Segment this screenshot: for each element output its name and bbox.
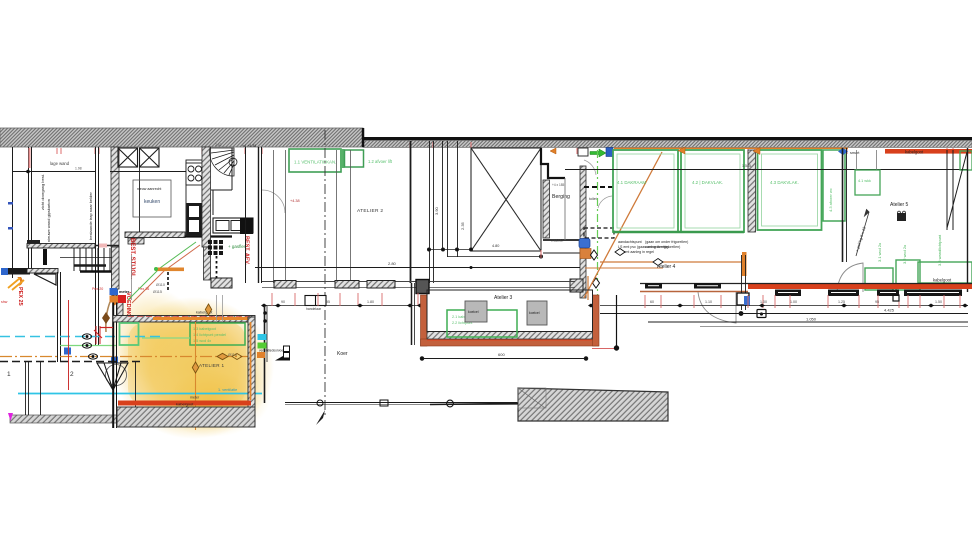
svg-text:koelcel: koelcel bbox=[529, 311, 540, 315]
svg-text:kabelgoot: kabelgoot bbox=[905, 150, 924, 155]
svg-text:+4 +4.38: +4 +4.38 bbox=[242, 144, 256, 148]
svg-text:2: 2 bbox=[70, 371, 74, 378]
svg-text:kabelgoot: kabelgoot bbox=[933, 278, 952, 283]
svg-text:1.050: 1.050 bbox=[806, 317, 817, 322]
svg-text:2.62: 2.62 bbox=[215, 143, 222, 147]
svg-text:meter: meter bbox=[119, 290, 130, 294]
svg-text:ventilatiedoorvoer: ventilatiedoorvoer bbox=[259, 349, 285, 353]
svg-text:koelcel: koelcel bbox=[468, 310, 479, 314]
svg-text:2.35: 2.35 bbox=[460, 221, 465, 230]
svg-text:Pex 20: Pex 20 bbox=[92, 287, 103, 291]
svg-text:90: 90 bbox=[281, 300, 285, 304]
svg-text:PEX 25: PEX 25 bbox=[17, 287, 23, 306]
svg-text:shw: shw bbox=[1, 300, 8, 304]
svg-text:(gaan om onder frigorellen): (gaan om onder frigorellen) bbox=[645, 240, 688, 244]
svg-text:1.50: 1.50 bbox=[935, 300, 942, 304]
svg-text:aandachtspunt: aandachtspunt bbox=[618, 240, 642, 244]
svg-text:nieuwe wand gipskarton: nieuwe wand gipskarton bbox=[46, 199, 51, 242]
svg-text:2.80: 2.80 bbox=[388, 261, 397, 266]
svg-text:1.545: 1.545 bbox=[742, 164, 751, 168]
svg-text:Atelier 3: Atelier 3 bbox=[494, 295, 513, 301]
svg-text:4.1 wkk: 4.1 wkk bbox=[858, 179, 871, 183]
svg-text:3.90: 3.90 bbox=[434, 206, 439, 215]
svg-text:4.1 DAKRAAM: 4.1 DAKRAAM bbox=[617, 180, 646, 185]
svg-text:1.1 VENTILATIEKAN.: 1.1 VENTILATIEKAN. bbox=[294, 160, 336, 165]
svg-text:+4.38: +4.38 bbox=[290, 199, 300, 203]
svg-text:3.3 wandlichtpunt: 3.3 wandlichtpunt bbox=[937, 234, 942, 266]
svg-text:BEST. AFV.: BEST. AFV. bbox=[244, 236, 250, 265]
svg-text:bestaande trap naar kelder: bestaande trap naar kelder bbox=[88, 192, 93, 240]
svg-text:1.00: 1.00 bbox=[790, 300, 797, 304]
svg-text:Ø115: Ø115 bbox=[153, 290, 162, 294]
svg-text:1: 1 bbox=[7, 371, 11, 378]
svg-text:1.4 lichtpunt pendel: 1.4 lichtpunt pendel bbox=[193, 333, 226, 337]
svg-text:Ø110: Ø110 bbox=[156, 283, 165, 287]
svg-text:4.425: 4.425 bbox=[884, 308, 895, 313]
svg-text:+4 x 185: +4 x 185 bbox=[552, 183, 565, 187]
svg-text:3.2 wcd 2x: 3.2 wcd 2x bbox=[902, 245, 907, 264]
svg-text:4.3 afvoer wc: 4.3 afvoer wc bbox=[828, 188, 833, 212]
svg-text:nieuw aanrecht: nieuw aanrecht bbox=[137, 187, 161, 191]
svg-text:3.1 wcd 2x: 3.1 wcd 2x bbox=[877, 243, 882, 262]
svg-text:wasbak: wasbak bbox=[551, 239, 563, 243]
svg-text:Koer: Koer bbox=[337, 351, 348, 357]
svg-text:handelaar: handelaar bbox=[306, 307, 322, 311]
svg-text:1.10: 1.10 bbox=[705, 300, 712, 304]
svg-text:1.00: 1.00 bbox=[760, 300, 767, 304]
svg-text:4.2 | DAKVLAK.: 4.2 | DAKVLAK. bbox=[692, 180, 723, 185]
svg-text:95: 95 bbox=[326, 300, 330, 304]
svg-text:1.3 kabelgoot: 1.3 kabelgoot bbox=[193, 327, 217, 331]
svg-text:smart: smart bbox=[850, 151, 860, 155]
svg-text:1. ventilatie: 1. ventilatie bbox=[218, 388, 237, 392]
svg-text:BEST. STIJGL.: BEST. STIJGL. bbox=[129, 238, 135, 280]
svg-text:ATELIER 2: ATELIER 2 bbox=[357, 208, 383, 214]
svg-text:meter: meter bbox=[190, 396, 200, 400]
svg-text:Atelier 4: Atelier 4 bbox=[657, 264, 676, 270]
svg-text:lage wand: lage wand bbox=[50, 161, 70, 166]
svg-text:1.25: 1.25 bbox=[838, 300, 845, 304]
svg-text:Berging: Berging bbox=[552, 194, 570, 200]
svg-text:60: 60 bbox=[650, 300, 654, 304]
svg-text:1.2 afvoer lift: 1.2 afvoer lift bbox=[368, 159, 393, 164]
svg-text:ATELIER 1: ATELIER 1 bbox=[199, 363, 224, 368]
svg-text:1.80: 1.80 bbox=[367, 300, 374, 304]
svg-text:toilet: toilet bbox=[589, 197, 597, 201]
svg-text:aanleg in regel: aanleg in regel bbox=[645, 245, 669, 249]
svg-text:600: 600 bbox=[498, 352, 505, 357]
svg-text:4.80: 4.80 bbox=[492, 244, 499, 248]
svg-text:kabelgoot: kabelgoot bbox=[176, 402, 194, 407]
svg-text:keuken: keuken bbox=[144, 199, 160, 205]
svg-text:Atelier 5: Atelier 5 bbox=[890, 202, 909, 208]
svg-text:zicht doorgang best.: zicht doorgang best. bbox=[40, 174, 45, 210]
svg-text:1.98: 1.98 bbox=[75, 167, 82, 171]
svg-text:4.3 DAKVLAK.: 4.3 DAKVLAK. bbox=[770, 180, 799, 185]
svg-text:95: 95 bbox=[875, 300, 879, 304]
